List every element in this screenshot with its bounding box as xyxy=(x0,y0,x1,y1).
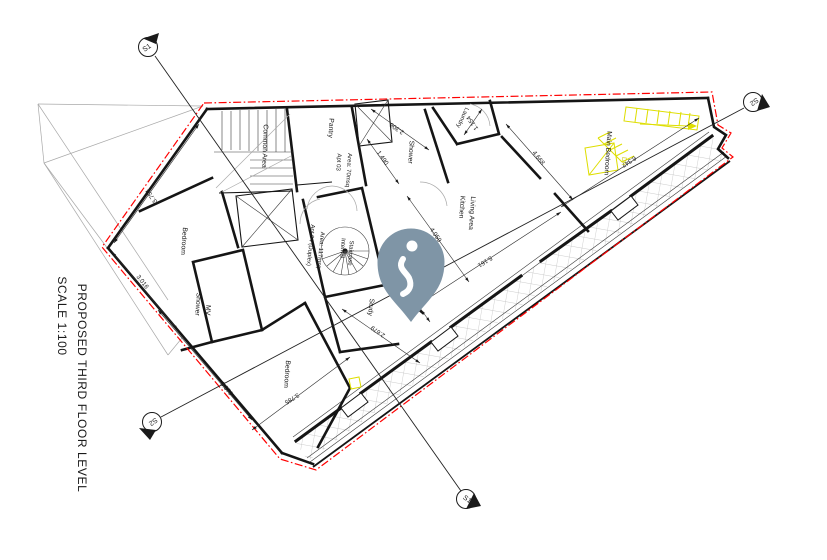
label-apt04: Apt 04 (Duplex) xyxy=(305,224,315,266)
pin-glyph-dot xyxy=(407,241,418,252)
floorplan-canvas[interactable]: 3.754 3.016 3.579 3.785 2.679 2.513 4.05… xyxy=(0,0,827,560)
label-internal-stair-1: Internal xyxy=(338,238,345,258)
dim-kitchen-length: 5.161 xyxy=(476,254,493,269)
dim-bedroom2-terrace: 3.785 xyxy=(283,391,300,406)
section-marker-s2-right: S2 xyxy=(744,93,771,112)
label-kitchen-2: Living Area xyxy=(467,196,476,230)
section-marker-s2-left: S2 xyxy=(139,413,162,441)
label-bedroom-left: Bedroom xyxy=(179,227,188,255)
dim-corridor: 2.679 xyxy=(369,324,386,339)
label-apt03-area: Area: 70msq xyxy=(344,153,352,187)
location-pin-marker[interactable] xyxy=(378,228,445,322)
label-stair-down: Dn xyxy=(620,157,628,166)
label-shower-mv-2: MV xyxy=(204,305,212,316)
label-pantry: Pantry xyxy=(326,118,334,139)
label-shower: Shower xyxy=(406,140,415,164)
label-shower-mv-1: Shower xyxy=(193,292,202,316)
floorplan-drawing: 3.754 3.016 3.579 3.785 2.679 2.513 4.05… xyxy=(0,0,827,560)
label-apt04-area: Area: 117msq xyxy=(315,231,325,268)
drawing-scale: SCALE 1:100 xyxy=(55,276,69,355)
section-marker-s1-top: S1 xyxy=(139,33,160,57)
dim-left-upper: 3.754 xyxy=(144,187,159,204)
dim-shower-depth: 1.490 xyxy=(375,150,390,167)
stair-direction-arrow xyxy=(688,122,697,130)
label-internal-stair-2: Staircase xyxy=(346,240,354,266)
label-bedroom-bottom: Bedroom xyxy=(282,360,291,388)
staircase-common xyxy=(214,109,293,193)
label-main-bedroom: Main Bedroom xyxy=(602,131,612,176)
dim-mainbed-width: 4.668 xyxy=(531,150,547,167)
drawing-title: PROPOSED THIRD FLOOR LEVEL xyxy=(75,284,89,493)
label-common-area: Common Area xyxy=(260,124,269,168)
section-arrow xyxy=(139,428,156,440)
terrace xyxy=(293,132,730,467)
label-apt03: Apt 03 xyxy=(334,153,341,171)
title-block: PROPOSED THIRD FLOOR LEVEL SCALE 1:100 xyxy=(55,276,89,492)
section-marker-s1-bottom: S1 xyxy=(457,490,482,510)
dim-laundry-width: 1.154 xyxy=(465,114,480,131)
label-kitchen-1: Kitchen xyxy=(457,196,466,219)
